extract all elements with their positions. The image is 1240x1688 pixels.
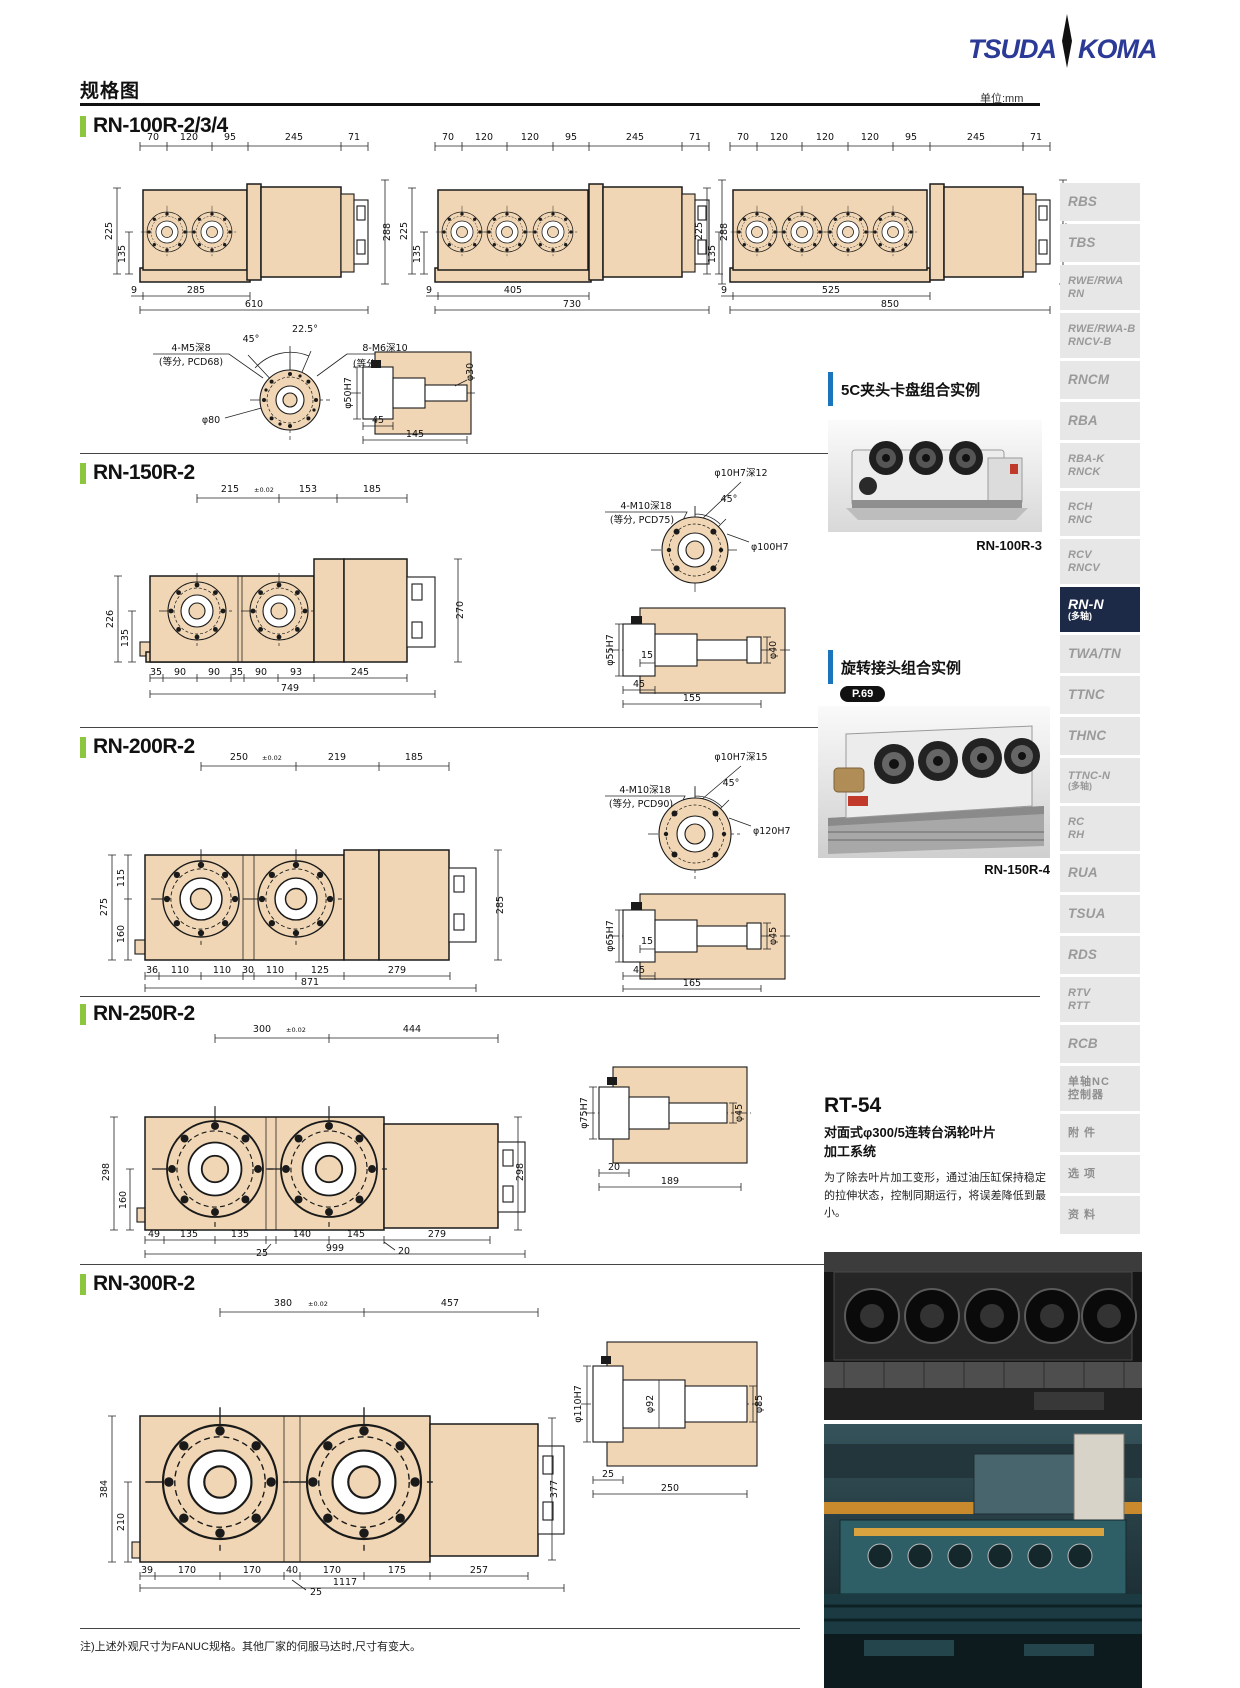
sidebar-item-rcv-rncv[interactable]: RCVRNCV: [1060, 539, 1140, 584]
product-index-sidebar: RBS TBS RWE/RWARN RWE/RWA-BRNCV-B RNCM R…: [1060, 183, 1140, 1237]
svg-text:1117: 1117: [333, 1577, 357, 1588]
svg-text:270: 270: [455, 601, 466, 619]
rt54-subtitle: 对面式φ300/5连转台涡轮叶片 加工系统: [824, 1124, 996, 1162]
sidebar-item-label: RC: [1068, 816, 1140, 828]
sidebar-item-rua[interactable]: RUA: [1060, 854, 1140, 892]
sidebar-item-rcb[interactable]: RCB: [1060, 1025, 1140, 1063]
svg-text:279: 279: [388, 965, 406, 976]
blue-accent-bar: [828, 372, 833, 406]
photo-rn150r-4: [818, 706, 1050, 858]
sidebar-item-label: TWA/TN: [1068, 647, 1140, 662]
sidebar-item-label: RN-N: [1068, 597, 1140, 612]
sidebar-item-rbs[interactable]: RBS: [1060, 183, 1140, 221]
sidebar-item-rba[interactable]: RBA: [1060, 402, 1140, 440]
tsudakoma-logo: TSUDA KOMA: [968, 30, 1157, 68]
section-accent-bar: [80, 116, 86, 137]
photo-rn100r-3-image: [828, 420, 1042, 532]
photo-caption-rn100r-3: RN-100R-3: [828, 538, 1042, 553]
sidebar-item-label2: RNCV-B: [1068, 336, 1140, 348]
example2-heading-text: 旋转接头组合实例: [841, 657, 961, 678]
svg-text:φ40: φ40: [768, 641, 779, 659]
svg-text:160: 160: [116, 925, 127, 943]
svg-text:120: 120: [475, 132, 493, 143]
svg-text:189: 189: [661, 1176, 679, 1187]
svg-text:9: 9: [426, 285, 432, 296]
svg-text:405: 405: [504, 285, 522, 296]
section-accent-bar: [80, 1274, 86, 1295]
sidebar-item-rba-k[interactable]: RBA-KRNCK: [1060, 443, 1140, 488]
svg-text:225: 225: [399, 222, 410, 240]
sidebar-item-label: RWE/RWA: [1068, 275, 1140, 287]
rt54-subtitle-line1: 对面式φ300/5连转台涡轮叶片: [824, 1124, 996, 1143]
svg-text:155: 155: [683, 693, 701, 704]
svg-text:15: 15: [641, 936, 653, 947]
drawing-rn200r-detail: 4-M10深18 (等分, PCD90) φ10H7深15 45° φ120H7…: [545, 742, 795, 992]
svg-text:φ75H7: φ75H7: [579, 1097, 590, 1129]
sidebar-item-label: RNCM: [1068, 373, 1140, 388]
svg-text:22.5°: 22.5°: [292, 324, 318, 335]
sidebar-item-label2: RNCK: [1068, 466, 1140, 478]
svg-text:φ85: φ85: [754, 1395, 765, 1413]
svg-text:±0.02: ±0.02: [286, 1026, 306, 1034]
svg-text:70: 70: [147, 132, 159, 143]
svg-text:30: 30: [242, 965, 254, 976]
svg-text:115: 115: [116, 869, 127, 887]
drawing-rn200r-2: 250 ±0.02 219 185 275 115 160 285 36 110…: [90, 750, 530, 995]
section-divider: [80, 996, 1040, 997]
svg-text:25: 25: [310, 1587, 322, 1596]
svg-text:110: 110: [171, 965, 189, 976]
svg-text:135: 135: [117, 245, 128, 263]
sidebar-item-ttnc[interactable]: TTNC: [1060, 676, 1140, 714]
drawing-rn150r-detail: 4-M10深18 (等分, PCD75) φ10H7深12 45° φ100H7…: [545, 458, 795, 713]
sidebar-item-label: RCH: [1068, 501, 1140, 513]
section-title-text: RN-300R-2: [93, 1272, 195, 1296]
svg-text:257: 257: [470, 1565, 488, 1576]
sidebar-item-label: THNC: [1068, 729, 1140, 744]
svg-text:525: 525: [822, 285, 840, 296]
sidebar-item-rwe-rwa-b[interactable]: RWE/RWA-BRNCV-B: [1060, 313, 1140, 358]
sidebar-item-label2: RH: [1068, 829, 1140, 841]
svg-text:(等分, PCD75): (等分, PCD75): [610, 514, 674, 526]
example1-heading-text: 5C夹头卡盘组合实例: [841, 379, 980, 400]
svg-text:610: 610: [245, 299, 263, 310]
sidebar-item-label: RBA-K: [1068, 453, 1140, 465]
sidebar-item-label: RDS: [1068, 948, 1140, 963]
sidebar-item-label: 附 件: [1068, 1127, 1140, 1139]
svg-text:25: 25: [602, 1469, 614, 1480]
photo-rt54-image-1: [824, 1252, 1142, 1420]
svg-text:457: 457: [441, 1298, 459, 1309]
sidebar-item-materials[interactable]: 资 料: [1060, 1196, 1140, 1234]
svg-text:φ110H7: φ110H7: [573, 1385, 584, 1423]
svg-text:175: 175: [388, 1565, 406, 1576]
svg-text:125: 125: [311, 965, 329, 976]
svg-text:245: 245: [351, 667, 369, 678]
svg-text:95: 95: [565, 132, 577, 143]
svg-text:300: 300: [253, 1024, 271, 1035]
svg-text:36: 36: [146, 965, 158, 976]
example1-heading: 5C夹头卡盘组合实例: [828, 372, 980, 406]
svg-text:9: 9: [131, 285, 137, 296]
svg-text:145: 145: [406, 429, 424, 440]
svg-text:730: 730: [563, 299, 581, 310]
drawing-rn100r-4: 70 120 120 120 95 245 71 225 135 288 9 5…: [685, 130, 1080, 335]
sidebar-item-rch-rnc[interactable]: RCHRNC: [1060, 491, 1140, 536]
svg-text:110: 110: [213, 965, 231, 976]
sidebar-item-twa-tn[interactable]: TWA/TN: [1060, 635, 1140, 673]
svg-text:285: 285: [495, 896, 506, 914]
svg-text:185: 185: [363, 484, 381, 495]
svg-text:95: 95: [224, 132, 236, 143]
sidebar-item-label2: RN: [1068, 288, 1140, 300]
svg-text:49: 49: [148, 1229, 160, 1240]
svg-text:999: 999: [326, 1243, 344, 1254]
svg-text:219: 219: [328, 752, 346, 763]
svg-text:95: 95: [905, 132, 917, 143]
sidebar-item-accessories[interactable]: 附 件: [1060, 1114, 1140, 1152]
sidebar-item-label2: (多轴): [1068, 782, 1140, 792]
svg-text:4-M10深18: 4-M10深18: [619, 785, 670, 796]
svg-text:245: 245: [967, 132, 985, 143]
svg-text:279: 279: [428, 1229, 446, 1240]
svg-text:120: 120: [770, 132, 788, 143]
svg-text:φ50H7: φ50H7: [343, 377, 354, 409]
svg-text:φ80: φ80: [202, 415, 220, 426]
sidebar-item-label: RCV: [1068, 549, 1140, 561]
sidebar-item-rds[interactable]: RDS: [1060, 936, 1140, 974]
svg-text:(等分, PCD68): (等分, PCD68): [159, 356, 223, 368]
page-ref-badge-text[interactable]: P.69: [840, 686, 885, 702]
svg-text:9: 9: [721, 285, 727, 296]
svg-text:135: 135: [180, 1229, 198, 1240]
svg-text:15: 15: [641, 650, 653, 661]
svg-text:185: 185: [405, 752, 423, 763]
svg-text:φ10H7深15: φ10H7深15: [714, 752, 767, 763]
svg-text:φ92: φ92: [645, 1395, 656, 1413]
svg-text:165: 165: [683, 978, 701, 989]
sidebar-item-label: 选 项: [1068, 1168, 1140, 1180]
drawing-rn100r-2: 70 120 95 245 71 225 135 288 9 285 610: [95, 130, 400, 335]
svg-text:250: 250: [661, 1483, 679, 1494]
svg-text:90: 90: [174, 667, 186, 678]
svg-text:φ120H7: φ120H7: [753, 826, 791, 837]
svg-text:170: 170: [243, 1565, 261, 1576]
logo-text-right: KOMA: [1078, 34, 1157, 65]
sidebar-item-label: RTV: [1068, 987, 1140, 999]
svg-text:(等分, PCD90): (等分, PCD90): [609, 798, 673, 810]
svg-text:4-M5深8: 4-M5深8: [171, 343, 210, 354]
blue-accent-bar: [828, 650, 833, 684]
photo-rn100r-3: [828, 420, 1042, 532]
photo-rt54-system-1: [824, 1252, 1142, 1420]
photo-rt54-image-2: [824, 1424, 1142, 1688]
rt54-title: RT-54: [824, 1094, 881, 1118]
sidebar-item-thnc[interactable]: THNC: [1060, 717, 1140, 755]
sidebar-item-label: TTNC: [1068, 688, 1140, 703]
svg-text:245: 245: [285, 132, 303, 143]
svg-text:110: 110: [266, 965, 284, 976]
drawing-rn100r-flange-detail: 4-M5深8 (等分, PCD68) 45° 22.5° 8-M6深10 (等分…: [95, 322, 480, 452]
svg-text:±0.02: ±0.02: [254, 486, 274, 494]
svg-text:226: 226: [105, 610, 116, 628]
sidebar-item-label: RCB: [1068, 1037, 1140, 1052]
svg-text:285: 285: [187, 285, 205, 296]
svg-text:71: 71: [348, 132, 360, 143]
rt54-subtitle-line2: 加工系统: [824, 1143, 996, 1162]
photo-caption-rn150r-4: RN-150R-4: [818, 862, 1050, 877]
sidebar-item-label: 单轴NC: [1068, 1076, 1140, 1088]
svg-text:245: 245: [626, 132, 644, 143]
svg-text:20: 20: [608, 1162, 620, 1173]
rt54-body: 为了除去叶片加工变形，通过油压缸保持稳定的拉伸状态，控制同期运行，将误差降低到最…: [824, 1170, 1046, 1223]
footer-rule: [80, 1628, 800, 1629]
svg-text:φ45: φ45: [768, 927, 779, 945]
section-accent-bar: [80, 737, 86, 758]
sidebar-item-tbs[interactable]: TBS: [1060, 224, 1140, 262]
sidebar-item-label: RBA: [1068, 414, 1140, 429]
sidebar-item-label: RWE/RWA-B: [1068, 323, 1140, 335]
svg-text:45°: 45°: [723, 778, 740, 789]
photo-rn150r-4-image: [818, 706, 1050, 858]
sidebar-item-options[interactable]: 选 项: [1060, 1155, 1140, 1193]
sidebar-item-label: TBS: [1068, 236, 1140, 251]
svg-text:120: 120: [861, 132, 879, 143]
section-title-rn300: RN-300R-2: [80, 1272, 195, 1296]
drawing-rn300r-detail: φ110H7 φ92 φ85 25 250: [555, 1330, 770, 1510]
svg-text:40: 40: [286, 1565, 298, 1576]
svg-text:225: 225: [694, 222, 705, 240]
svg-text:φ10H7深12: φ10H7深12: [714, 468, 767, 479]
section-accent-bar: [80, 1004, 86, 1025]
svg-text:120: 120: [180, 132, 198, 143]
sidebar-item-label: 资 料: [1068, 1209, 1140, 1221]
svg-text:20: 20: [398, 1246, 410, 1257]
svg-text:170: 170: [178, 1565, 196, 1576]
svg-text:135: 135: [120, 629, 131, 647]
page-title: 规格图: [80, 76, 140, 103]
svg-text:70: 70: [442, 132, 454, 143]
section-accent-bar: [80, 463, 86, 484]
svg-text:871: 871: [301, 977, 319, 988]
sidebar-item-tsua[interactable]: TSUA: [1060, 895, 1140, 933]
logo-text-left: TSUDA: [968, 34, 1056, 65]
sidebar-item-rncm[interactable]: RNCM: [1060, 361, 1140, 399]
sidebar-item-label: RBS: [1068, 195, 1140, 210]
svg-text:135: 135: [231, 1229, 249, 1240]
svg-text:135: 135: [707, 245, 718, 263]
svg-text:φ65H7: φ65H7: [605, 920, 616, 952]
svg-text:45: 45: [372, 415, 384, 426]
svg-text:φ100H7: φ100H7: [751, 542, 789, 553]
svg-text:850: 850: [881, 299, 899, 310]
svg-text:φ30: φ30: [465, 363, 476, 381]
sidebar-item-label2: 控制器: [1068, 1089, 1140, 1101]
sidebar-item-ttnc-n[interactable]: TTNC-N(多轴): [1060, 758, 1140, 803]
svg-text:444: 444: [403, 1024, 421, 1035]
svg-text:120: 120: [816, 132, 834, 143]
sidebar-item-label2: RTT: [1068, 1000, 1140, 1012]
svg-text:170: 170: [323, 1565, 341, 1576]
sidebar-item-rwe-rwa-rn[interactable]: RWE/RWARN: [1060, 265, 1140, 310]
sidebar-item-label2: RNCV: [1068, 562, 1140, 574]
svg-text:90: 90: [208, 667, 220, 678]
svg-text:45°: 45°: [243, 334, 260, 345]
sidebar-item-label: TTNC-N: [1068, 770, 1140, 782]
svg-text:275: 275: [99, 898, 110, 916]
catalog-page: 规格图 单位:mm TSUDA KOMA RN-100R-2/3/4 70 12…: [0, 0, 1240, 1688]
svg-text:145: 145: [347, 1229, 365, 1240]
drawing-rn250r-detail: φ75H7 φ45 20 189: [555, 1055, 755, 1205]
svg-text:215: 215: [221, 484, 239, 495]
svg-text:71: 71: [1030, 132, 1042, 143]
sidebar-item-label: TSUA: [1068, 907, 1140, 922]
svg-text:45: 45: [633, 965, 645, 976]
sidebar-item-rc-rh[interactable]: RCRH: [1060, 806, 1140, 851]
svg-text:384: 384: [99, 1480, 110, 1498]
svg-text:70: 70: [737, 132, 749, 143]
svg-text:φ45: φ45: [734, 1104, 745, 1122]
svg-text:4-M10深18: 4-M10深18: [620, 501, 671, 512]
header-rule: [80, 103, 1040, 106]
sidebar-item-label2: RNC: [1068, 514, 1140, 526]
svg-text:39: 39: [141, 1565, 153, 1576]
svg-text:153: 153: [299, 484, 317, 495]
svg-text:225: 225: [104, 222, 115, 240]
svg-text:93: 93: [290, 667, 302, 678]
svg-text:140: 140: [293, 1229, 311, 1240]
sidebar-item-rtv-rtt[interactable]: RTVRTT: [1060, 977, 1140, 1022]
svg-text:120: 120: [521, 132, 539, 143]
svg-text:90: 90: [255, 667, 267, 678]
sidebar-item-label: RUA: [1068, 866, 1140, 881]
footer-note: 注)上述外观尺寸为FANUC规格。其他厂家的伺服马达时,尺寸有变大。: [80, 1638, 421, 1654]
svg-text:298: 298: [101, 1163, 112, 1181]
sidebar-item-nc-controller[interactable]: 单轴NC控制器: [1060, 1066, 1140, 1111]
svg-text:250: 250: [230, 752, 248, 763]
svg-text:±0.02: ±0.02: [308, 1300, 328, 1308]
logo-diamond-icon: [1057, 14, 1077, 68]
svg-text:35: 35: [150, 667, 162, 678]
svg-text:φ55H7: φ55H7: [605, 634, 616, 666]
drawing-rn250r-2: 300 ±0.02 444 298 160 298 49 135 135 140…: [90, 1022, 550, 1262]
svg-text:25: 25: [256, 1248, 268, 1259]
photo-rt54-system-2: [824, 1424, 1142, 1688]
svg-text:298: 298: [515, 1163, 526, 1181]
svg-text:160: 160: [118, 1191, 129, 1209]
svg-text:380: 380: [274, 1298, 292, 1309]
drawing-rn300r-2: 380 ±0.02 457 384 210 377 39 170 170 40 …: [90, 1296, 575, 1596]
example2-heading: 旋转接头组合实例: [828, 650, 961, 684]
svg-text:45°: 45°: [721, 494, 738, 505]
svg-text:135: 135: [412, 245, 423, 263]
svg-text:210: 210: [116, 1513, 127, 1531]
svg-text:35: 35: [231, 667, 243, 678]
sidebar-item-rn-n-active[interactable]: RN-N(多轴): [1060, 587, 1140, 632]
drawing-rn150r-2: 215 ±0.02 153 185 226 135 270 35 90 90 3…: [90, 482, 510, 712]
svg-text:45: 45: [633, 679, 645, 690]
page-ref-badge[interactable]: P.69: [840, 684, 885, 702]
sidebar-item-label2: (多轴): [1068, 612, 1140, 622]
svg-text:749: 749: [281, 683, 299, 694]
svg-text:±0.02: ±0.02: [262, 754, 282, 762]
